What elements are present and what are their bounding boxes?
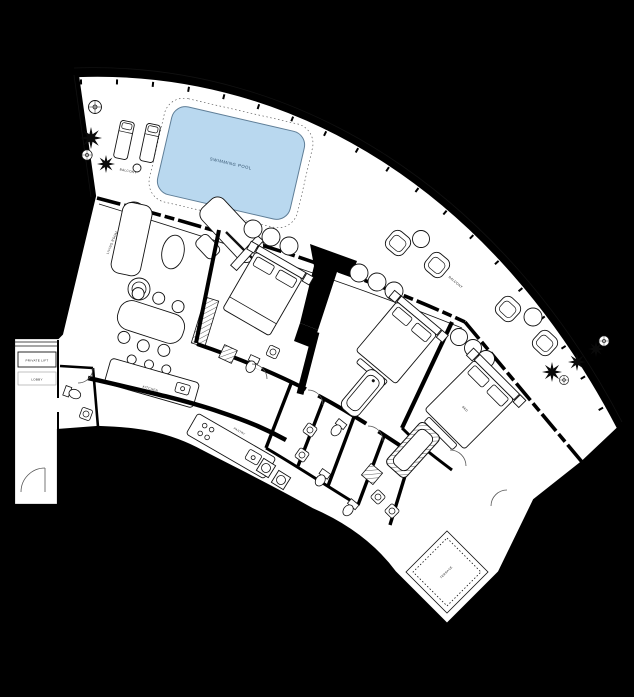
round-chair-icon	[280, 237, 298, 255]
building-footprint	[14, 76, 618, 624]
round-chair-icon	[262, 228, 280, 246]
round-chair-icon	[244, 220, 262, 238]
floor-plan: SWIMMING POOL BALCONY BALCONY	[0, 0, 634, 697]
lobby-label: LOBBY	[31, 378, 43, 382]
planter-icon	[599, 336, 609, 346]
round-chair-icon	[350, 264, 368, 282]
side-table-icon	[413, 231, 430, 248]
floor-plan-svg: SWIMMING POOL BALCONY BALCONY	[0, 0, 634, 697]
round-chair-icon	[368, 273, 386, 291]
private-lift-label: PRIVATE LIFT	[26, 359, 49, 363]
round-chair-icon	[451, 329, 468, 346]
unit-outline	[14, 68, 622, 624]
planter-icon	[89, 101, 102, 114]
side-table-icon	[524, 308, 542, 326]
planter-icon	[559, 375, 568, 384]
planter-icon	[82, 150, 92, 160]
